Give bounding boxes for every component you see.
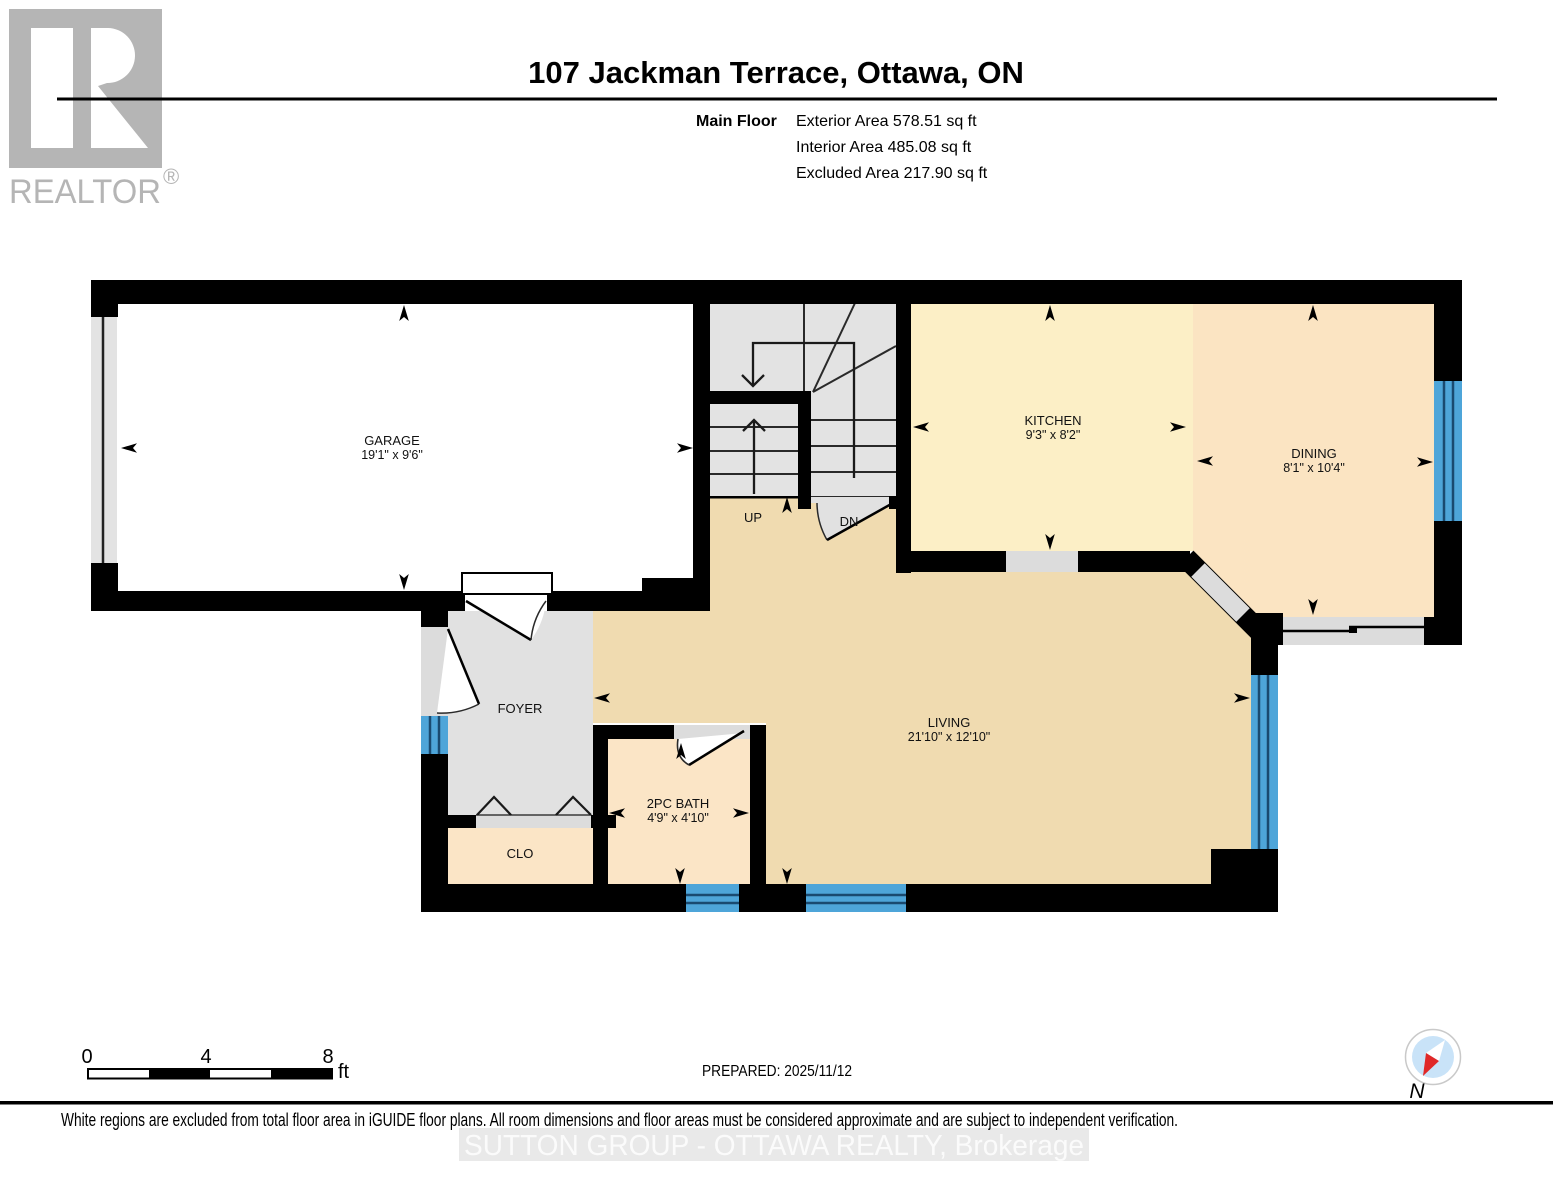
- svg-text:PREPARED: 2025/11/12: PREPARED: 2025/11/12: [702, 1063, 852, 1080]
- svg-text:UP: UP: [744, 510, 762, 525]
- svg-text:9'3" x 8'2": 9'3" x 8'2": [1026, 428, 1081, 442]
- svg-text:SUTTON GROUP - OTTAWA REALTY,: SUTTON GROUP - OTTAWA REALTY, Brokerage: [464, 1130, 1084, 1162]
- svg-text:GARAGE: GARAGE: [364, 433, 420, 448]
- svg-text:DINING: DINING: [1291, 446, 1337, 461]
- svg-text:8'1" x 10'4": 8'1" x 10'4": [1283, 461, 1345, 475]
- svg-text:DN: DN: [840, 514, 859, 529]
- svg-text:ft: ft: [338, 1061, 350, 1083]
- svg-text:LIVING: LIVING: [928, 715, 971, 730]
- svg-text:REALTOR: REALTOR: [9, 173, 161, 211]
- svg-text:2PC BATH: 2PC BATH: [647, 796, 710, 811]
- svg-text:4'9" x 4'10": 4'9" x 4'10": [647, 811, 709, 825]
- svg-text:8: 8: [322, 1046, 333, 1068]
- svg-text:N: N: [1409, 1080, 1425, 1103]
- svg-text:Exterior Area 578.51 sq ft: Exterior Area 578.51 sq ft: [796, 113, 977, 130]
- svg-text:Interior Area 485.08 sq ft: Interior Area 485.08 sq ft: [796, 139, 972, 156]
- svg-text:KITCHEN: KITCHEN: [1024, 413, 1081, 428]
- svg-text:®: ®: [163, 164, 179, 189]
- svg-text:White regions are excluded fro: White regions are excluded from total fl…: [61, 1109, 1178, 1130]
- svg-text:4: 4: [200, 1046, 211, 1068]
- svg-text:0: 0: [81, 1046, 92, 1068]
- svg-text:19'1" x 9'6": 19'1" x 9'6": [361, 448, 423, 462]
- svg-text:Main Floor: Main Floor: [696, 113, 777, 130]
- svg-text:Excluded Area 217.90 sq ft: Excluded Area 217.90 sq ft: [796, 165, 988, 182]
- svg-text:CLO: CLO: [507, 846, 534, 861]
- svg-text:21'10" x 12'10": 21'10" x 12'10": [908, 730, 990, 744]
- svg-text:107 Jackman Terrace, Ottawa, O: 107 Jackman Terrace, Ottawa, ON: [528, 55, 1024, 90]
- svg-text:FOYER: FOYER: [498, 701, 543, 716]
